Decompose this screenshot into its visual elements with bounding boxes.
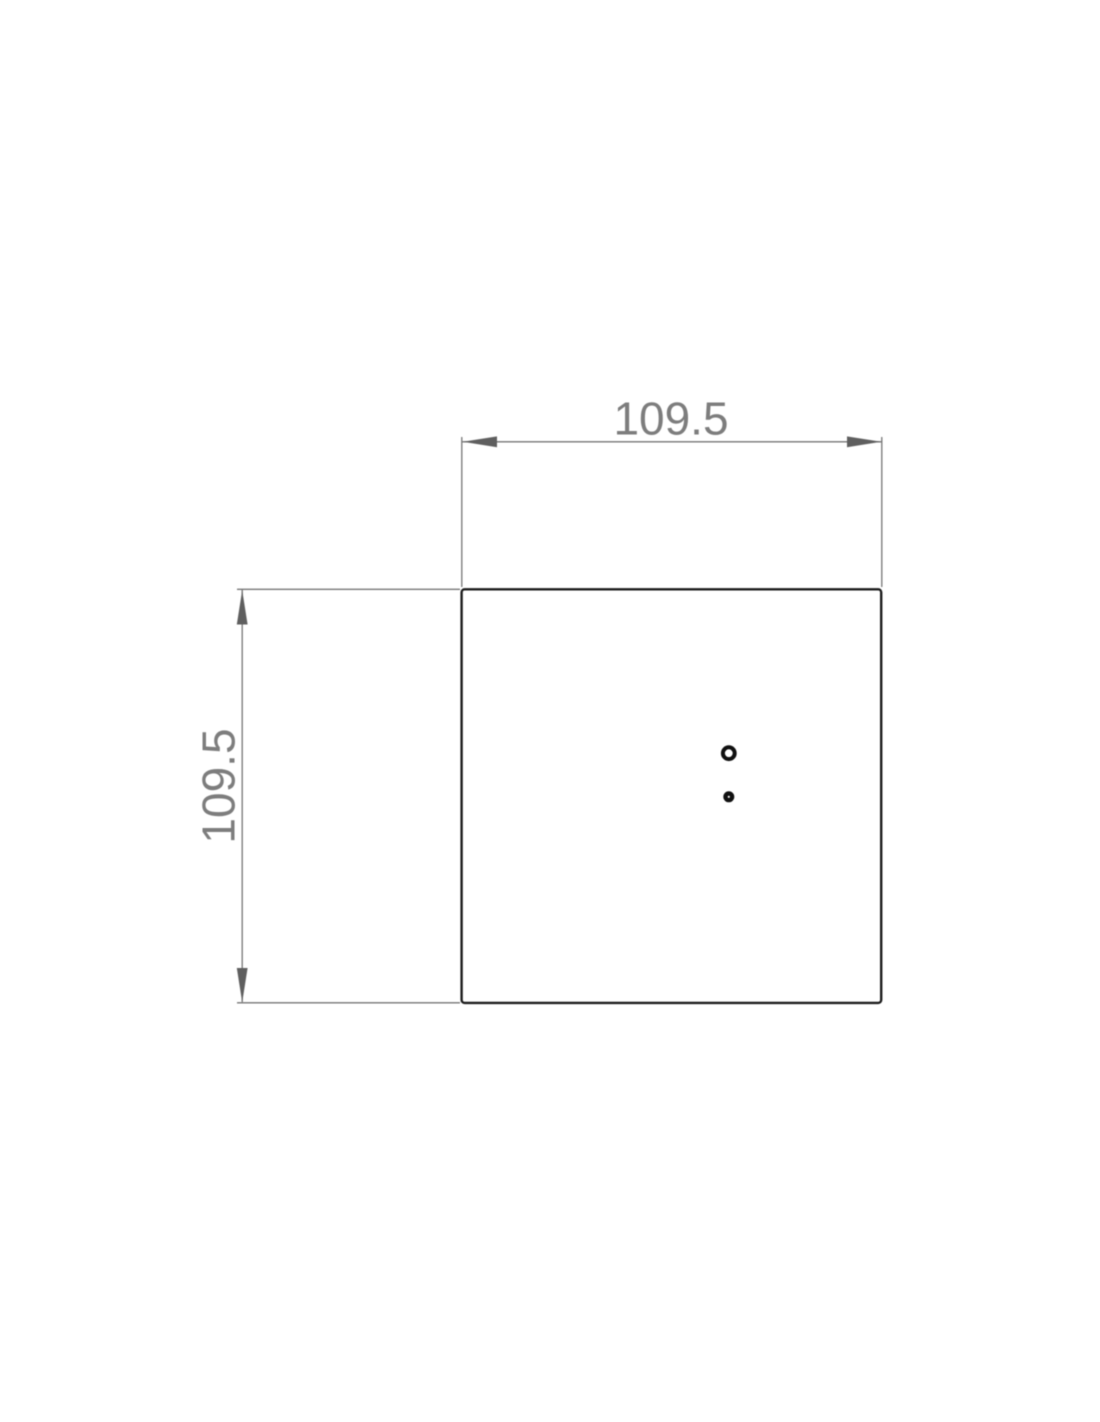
svg-text:109.5: 109.5 [613, 393, 728, 445]
svg-text:109.5: 109.5 [193, 728, 245, 843]
